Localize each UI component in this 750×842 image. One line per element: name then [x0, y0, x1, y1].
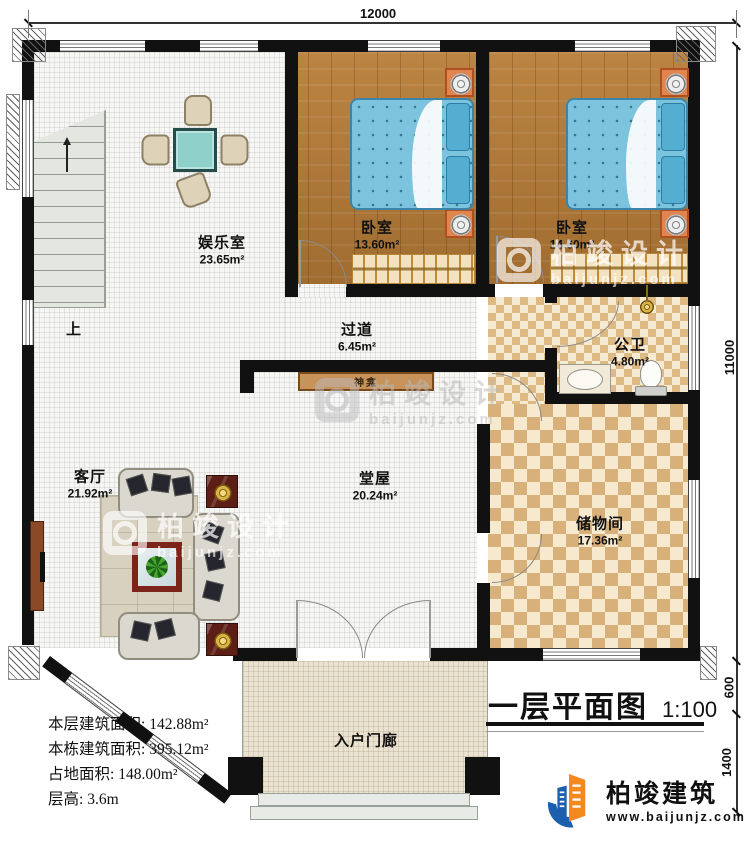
cushion-7: [130, 620, 151, 641]
info-row-floor-height: 层高: 3.6m: [48, 787, 209, 812]
hatch-top-left: [12, 28, 46, 62]
floor-porch: [242, 661, 488, 793]
wall-corridor-bottom: [240, 360, 557, 372]
wall-left-mid: [22, 197, 34, 300]
label-bathroom: 公卫4.80m²: [611, 334, 649, 369]
drawing-title: 一层平面图: [488, 682, 648, 726]
label-bedroom2: 卧室14.60m²: [550, 217, 595, 252]
porch-step-1: [258, 793, 470, 806]
label-corridor: 过道6.45m²: [338, 319, 376, 354]
cushion-3: [172, 476, 193, 497]
label-living: 客厅21.92m²: [68, 466, 113, 501]
window-bedroom2: [575, 40, 650, 52]
hatch-bottom-right: [700, 646, 717, 680]
porch-post-left: [228, 757, 263, 795]
label-bedroom1: 卧室13.60m²: [355, 217, 400, 252]
porch-post-right: [465, 757, 500, 795]
side-table-bottom: [206, 623, 238, 656]
wall-bedrooms-bottom-b: [346, 284, 495, 297]
shower-fixture: [640, 300, 654, 314]
window-entertainment-2: [200, 40, 258, 52]
dim-right-step: 600: [721, 677, 736, 699]
dim-line-top: [28, 22, 737, 24]
hatch-top-right: [676, 26, 716, 62]
info-row-floor-area: 本层建筑面积: 142.88m²: [48, 712, 209, 737]
wall-right-upper: [688, 40, 700, 306]
wall-hall-stub: [240, 360, 254, 393]
side-table-top: [206, 475, 238, 508]
pillow-br2-b: [661, 156, 685, 204]
label-entertainment: 娱乐室23.65m²: [198, 232, 246, 267]
pillow-br2-a: [661, 103, 685, 151]
dim-ext-top-left: [28, 10, 29, 38]
window-storage-bottom: [543, 648, 640, 661]
chair-left: [142, 135, 170, 166]
info-row-footprint: 占地面积: 148.00m²: [48, 762, 209, 787]
brand-website: www.baijunjz.com: [606, 810, 746, 824]
shrine-cabinet: 神龛: [298, 372, 434, 391]
wall-bathroom-left-a: [545, 297, 557, 303]
door-bedroom1-leaf: [299, 240, 301, 287]
label-hall: 堂屋20.24m²: [353, 468, 398, 503]
hatch-left-strip: [6, 94, 20, 190]
drawing-scale: 1:100: [662, 697, 717, 723]
window-stairwell: [22, 100, 34, 197]
title-underline-thick: [486, 722, 704, 726]
shrine-label: 神龛: [354, 374, 378, 389]
door-bedroom2-leaf: [496, 236, 498, 283]
drawing-title-block: 一层平面图 1:100: [488, 682, 717, 726]
dim-top-value: 12000: [360, 6, 396, 21]
wall-bedroom-divider: [476, 40, 489, 284]
building-info-block: 本层建筑面积: 142.88m² 本栋建筑面积: 395.12m² 占地面积: …: [48, 712, 209, 812]
wardrobe-bedroom1: [352, 254, 475, 284]
entrance-door-left-leaf: [296, 600, 298, 658]
game-table: [173, 128, 217, 172]
label-storage: 储物间17.36m²: [576, 513, 624, 548]
wall-bedrooms-bottom-c: [543, 284, 700, 297]
pillow-br1-b: [446, 156, 470, 204]
dim-ext-top-right: [736, 10, 737, 38]
window-bedroom1: [368, 40, 440, 52]
nightstand-br1-bottom: [445, 209, 474, 238]
chair-right: [221, 135, 249, 166]
sink-basin: [567, 369, 603, 390]
wardrobe-bedroom2: [550, 253, 688, 283]
info-row-building-area: 本栋建筑面积: 395.12m²: [48, 737, 209, 762]
hatch-bottom-left: [8, 646, 40, 680]
floor-plan-sheet: 上: [0, 0, 750, 842]
stairs-up-label: 上: [66, 318, 81, 339]
window-bathroom: [688, 306, 700, 390]
brand-name: 柏竣建筑: [606, 774, 746, 810]
window-left-small: [22, 300, 34, 345]
cushion-2: [151, 473, 171, 493]
dim-right-main: 11000: [722, 340, 737, 375]
tv-screen: [40, 552, 45, 582]
title-underline-thin: [486, 731, 704, 732]
brand-logo-icon: [540, 768, 598, 830]
nightstand-br2-top: [660, 68, 689, 97]
pillow-br1-a: [446, 103, 470, 151]
shower-cord: [646, 285, 648, 301]
chair-top: [184, 95, 212, 126]
nightstand-br1-top: [445, 68, 474, 97]
wall-bedrooms-bottom-a: [285, 284, 298, 297]
nightstand-br2-bottom: [660, 209, 689, 238]
wall-bedroom1-left: [285, 40, 298, 284]
wall-storage-left-a: [477, 424, 490, 533]
porch-step-2: [250, 806, 478, 820]
floor-corridor: [285, 297, 477, 360]
cushion-5: [204, 550, 225, 571]
window-entertainment-1: [60, 40, 145, 52]
label-porch: 入户门廊: [334, 730, 398, 751]
stairs-direction-arrow: [66, 140, 68, 172]
table-plant: [146, 556, 168, 578]
entrance-door-right-leaf: [429, 600, 431, 658]
wall-storage-left-b: [477, 583, 490, 658]
wall-bottom-hall-left: [233, 648, 297, 661]
window-storage-right: [688, 480, 700, 578]
brand-block: 柏竣建筑 www.baijunjz.com: [540, 768, 746, 830]
toilet-tank: [635, 386, 667, 396]
